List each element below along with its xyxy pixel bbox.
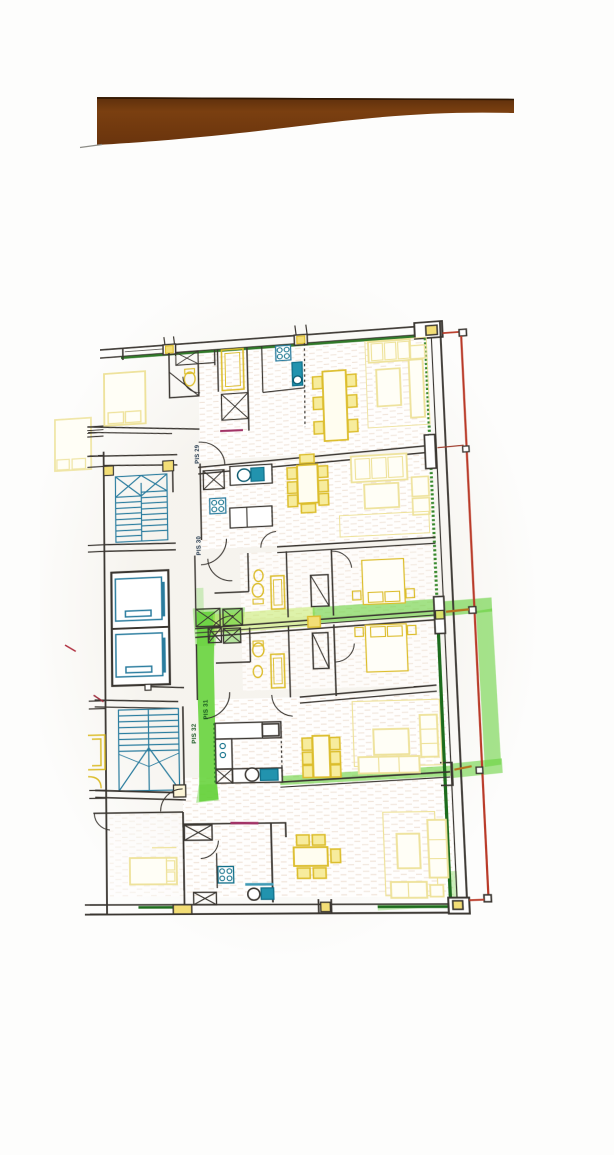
- svg-text:PIS 29: PIS 29: [194, 444, 201, 463]
- svg-text:PIS 31: PIS 31: [203, 699, 210, 719]
- svg-text:PIS 32: PIS 32: [191, 723, 198, 743]
- svg-text:PIS 30: PIS 30: [196, 536, 203, 556]
